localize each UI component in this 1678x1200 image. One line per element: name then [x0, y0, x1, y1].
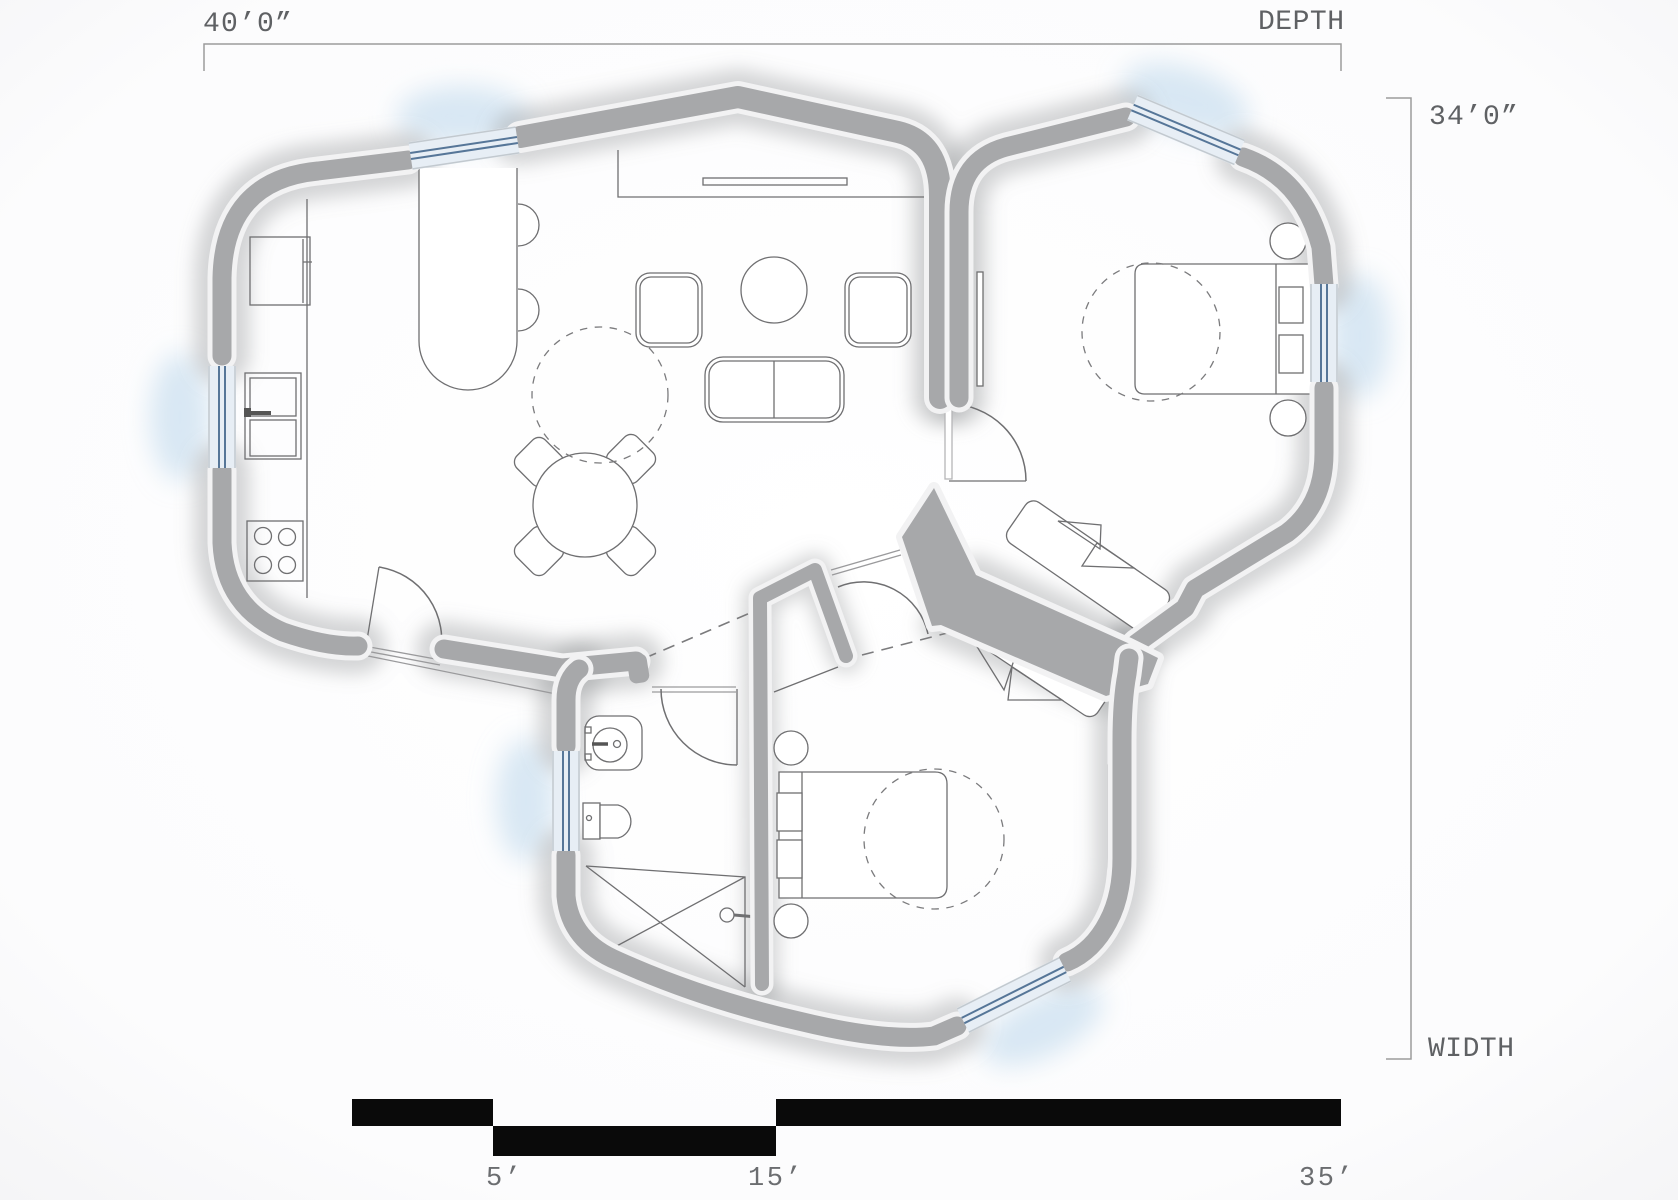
svg-text:15’: 15’: [748, 1164, 804, 1194]
svg-text:5’: 5’: [486, 1164, 523, 1194]
svg-text:DEPTH: DEPTH: [1258, 7, 1345, 38]
svg-text:WIDTH: WIDTH: [1428, 1034, 1515, 1065]
svg-text:35’: 35’: [1299, 1164, 1355, 1194]
svg-text:40’0”: 40’0”: [203, 9, 293, 40]
svg-text:34’0”: 34’0”: [1429, 102, 1519, 133]
